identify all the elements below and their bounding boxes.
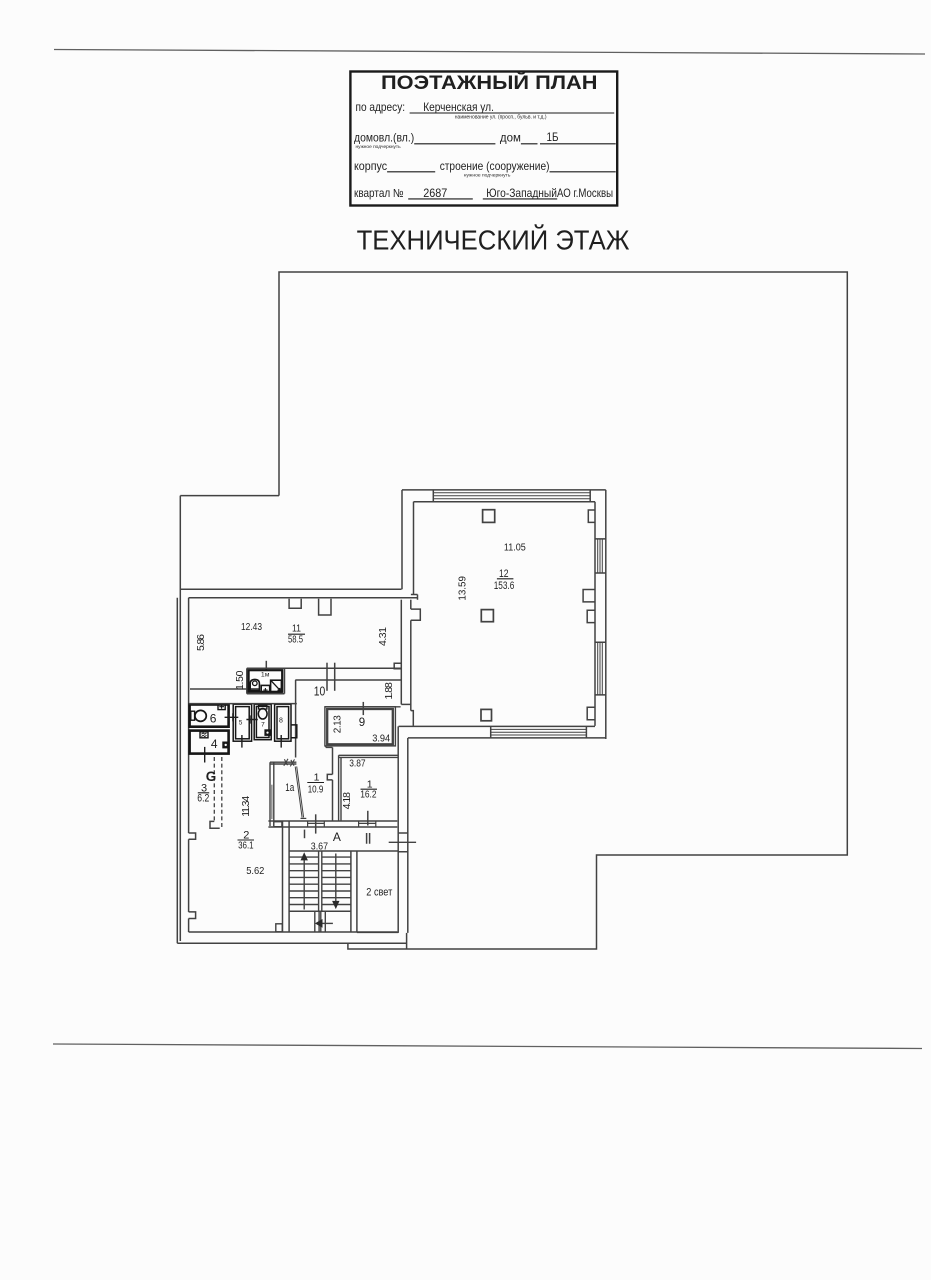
svg-text:наименование ул. (просп., буль: наименование ул. (просп., бульв. и т.д.): [455, 115, 547, 121]
svg-text:10.9: 10.9: [308, 783, 324, 795]
svg-text:по адресу:: по адресу:: [356, 101, 406, 114]
svg-text:G: G: [206, 769, 217, 784]
svg-text:4.18: 4.18: [341, 792, 353, 810]
svg-text:1а: 1а: [285, 782, 295, 794]
svg-text:А: А: [333, 830, 341, 844]
svg-text:5.86: 5.86: [195, 634, 207, 651]
svg-text:10: 10: [314, 684, 326, 699]
svg-text:36.1: 36.1: [238, 840, 254, 852]
svg-text:2 свет: 2 свет: [366, 886, 392, 898]
svg-text:8: 8: [279, 718, 283, 725]
svg-text:16.2: 16.2: [360, 789, 377, 801]
svg-text:6.2: 6.2: [197, 792, 209, 804]
svg-text:2687: 2687: [423, 187, 447, 200]
svg-text:ПОЭТАЖНЫЙ ПЛАН: ПОЭТАЖНЫЙ ПЛАН: [381, 72, 598, 94]
svg-text:11.05: 11.05: [504, 543, 526, 554]
svg-text:5.62: 5.62: [246, 865, 264, 877]
svg-text:3.67: 3.67: [311, 840, 328, 852]
svg-text:11.34: 11.34: [240, 796, 252, 817]
svg-text:3.94: 3.94: [372, 733, 390, 745]
svg-text:строение (сооружение): строение (сооружение): [440, 160, 550, 173]
svg-text:5: 5: [239, 719, 243, 726]
svg-text:домовл.(вл.): домовл.(вл.): [354, 132, 414, 145]
svg-text:4.31: 4.31: [377, 627, 389, 646]
svg-text:АО г.Москвы: АО г.Москвы: [557, 187, 613, 200]
svg-text:58.5: 58.5: [288, 634, 303, 646]
svg-text:квартал №: квартал №: [354, 187, 404, 200]
svg-text:1.88: 1.88: [383, 682, 395, 700]
svg-text:дом: дом: [500, 132, 521, 145]
svg-text:4: 4: [211, 737, 218, 751]
svg-text:12: 12: [499, 568, 509, 580]
svg-text:2.13: 2.13: [333, 715, 344, 733]
svg-text:корпус: корпус: [354, 160, 387, 173]
svg-text:нужное подчеркнуть: нужное подчеркнуть: [356, 145, 402, 150]
svg-text:12.43: 12.43: [241, 621, 262, 633]
svg-text:9: 9: [359, 717, 365, 729]
svg-text:1.50: 1.50: [234, 670, 246, 690]
svg-text:1: 1: [314, 771, 320, 783]
svg-text:нужное подчеркнуть: нужное подчеркнуть: [464, 173, 511, 178]
svg-text:1Б: 1Б: [547, 131, 559, 144]
svg-text:153.6: 153.6: [494, 580, 515, 592]
svg-text:Керченская ул.: Керченская ул.: [423, 101, 494, 114]
svg-text:3.87: 3.87: [349, 757, 366, 769]
svg-text:Юго-Западный: Юго-Западный: [486, 187, 557, 200]
svg-text:13.59: 13.59: [457, 576, 468, 601]
svg-text:7: 7: [261, 721, 265, 728]
svg-text:6: 6: [210, 712, 217, 726]
svg-text:ТЕХНИЧЕСКИЙ ЭТАЖ: ТЕХНИЧЕСКИЙ ЭТАЖ: [357, 224, 630, 256]
svg-text:1м: 1м: [261, 672, 270, 679]
